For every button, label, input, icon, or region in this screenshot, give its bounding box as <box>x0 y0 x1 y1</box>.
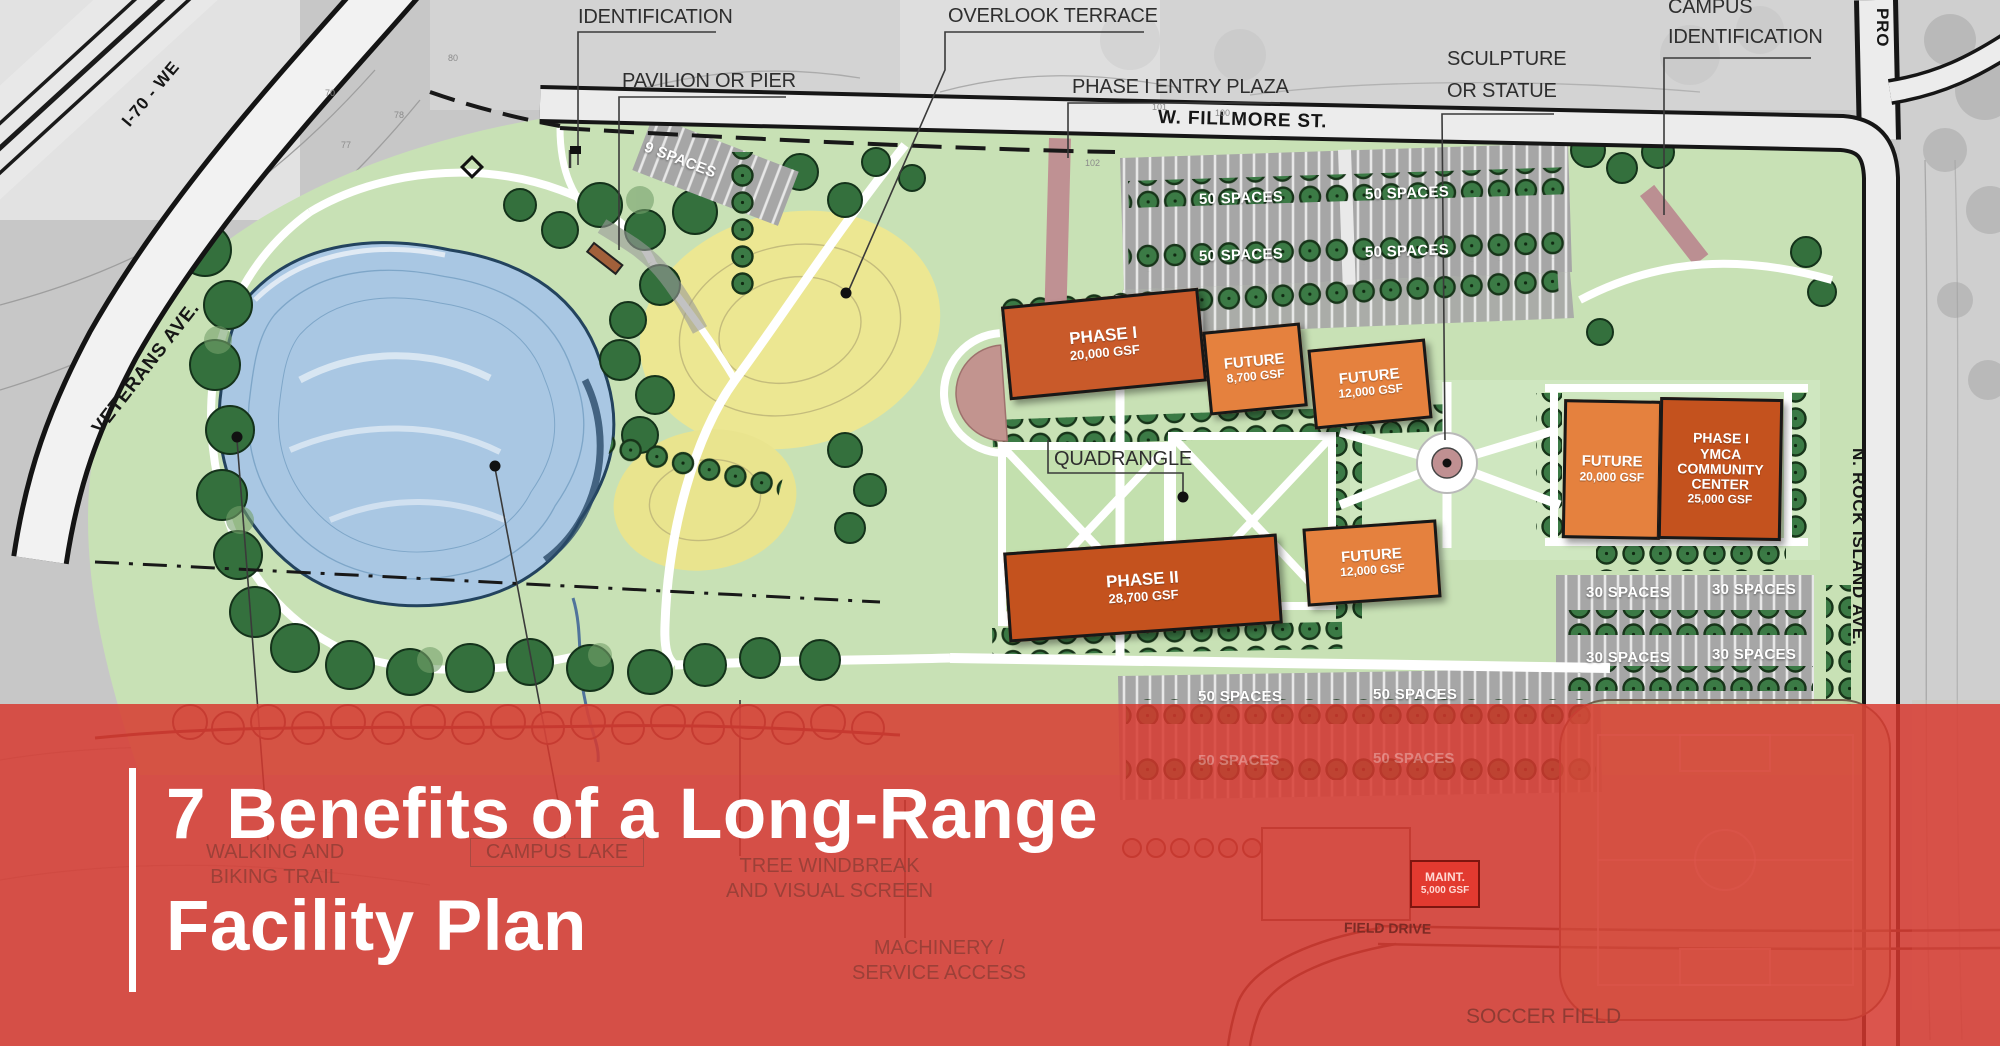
banner-title-line1: 7 Benefits of a Long-Range <box>166 774 1098 855</box>
building-future-20000: FUTURE 20,000 GSF <box>1562 399 1662 540</box>
building-future-12000-south: FUTURE 12,000 GSF <box>1302 519 1441 606</box>
parking-label-30-spaces: 30 SPACES <box>1586 649 1670 666</box>
contour-number: 100 <box>1215 108 1230 118</box>
parking-label-50-spaces-faded: 50 SPACES <box>1198 752 1279 769</box>
contour-number: 70 <box>325 88 335 98</box>
title-banner-overlay: WALKING AND BIKING TRAIL CAMPUS LAKE TRE… <box>0 704 2000 1046</box>
callout-line: SERVICE ACCESS <box>852 961 1026 986</box>
building-label: 28,700 GSF <box>1108 587 1179 607</box>
callout-campus-id-line1: CAMPUS <box>1668 0 1752 20</box>
parking-label-50-spaces: 50 SPACES <box>1365 183 1450 203</box>
parking-label-30-spaces: 30 SPACES <box>1586 584 1670 601</box>
contour-number: 77 <box>341 140 351 150</box>
street-label-rock-island: N. ROCK ISLAND AVE. <box>1848 448 1868 646</box>
callout-line: AND VISUAL SCREEN <box>726 879 933 904</box>
callout-line: MACHINERY / <box>852 936 1026 961</box>
callout-tree-windbreak: TREE WINDBREAK AND VISUAL SCREEN <box>726 854 933 904</box>
callout-identification: IDENTIFICATION <box>578 6 733 30</box>
callout-entry-plaza: PHASE I ENTRY PLAZA <box>1072 76 1289 100</box>
contour-number: 101 <box>1152 102 1167 112</box>
callout-sculpture-line1: SCULPTURE <box>1447 48 1566 72</box>
parking-label-50-spaces: 50 SPACES <box>1199 245 1284 265</box>
street-label-fillmore: W. FILLMORE ST. <box>1158 107 1328 133</box>
parking-label-50-spaces: 50 SPACES <box>1373 686 1457 703</box>
building-label: 8,700 GSF <box>1226 368 1285 387</box>
banner-title-line2: Facility Plan <box>166 886 587 967</box>
building-ymca-community-center: PHASE I YMCA COMMUNITY CENTER 25,000 GSF <box>1658 397 1783 541</box>
contour-number: 78 <box>394 110 404 120</box>
parking-label-30-spaces: 30 SPACES <box>1712 581 1796 598</box>
parking-label-50-spaces-faded: 50 SPACES <box>1373 750 1454 767</box>
callout-quadrangle: QUADRANGLE <box>1054 448 1192 472</box>
street-label-prospect: PRO <box>1872 8 1892 47</box>
building-maintenance: MAINT. 5,000 GSF <box>1410 860 1480 908</box>
title-accent-bar <box>129 768 136 992</box>
callout-sculpture-line2: OR STATUE <box>1447 80 1557 104</box>
parking-label-50-spaces: 50 SPACES <box>1365 241 1450 261</box>
callout-line: TREE WINDBREAK <box>726 854 933 879</box>
callout-overlook-terrace: OVERLOOK TERRACE <box>948 5 1158 29</box>
contour-number: 80 <box>448 53 458 63</box>
contour-number: 102 <box>1085 158 1100 168</box>
building-label: 25,000 GSF <box>1687 492 1752 507</box>
building-phase1: PHASE I 20,000 GSF <box>1001 288 1207 401</box>
parking-label-50-spaces: 50 SPACES <box>1199 188 1284 208</box>
callout-soccer-field: SOCCER FIELD <box>1466 1004 1621 1030</box>
building-label: 5,000 GSF <box>1421 885 1469 897</box>
parking-label-50-spaces: 50 SPACES <box>1198 688 1282 705</box>
building-future-12000-north: FUTURE 12,000 GSF <box>1307 339 1432 430</box>
building-phase2: PHASE II 28,700 GSF <box>1003 534 1283 643</box>
building-label: MAINT. <box>1425 871 1465 884</box>
callout-campus-id-line2: IDENTIFICATION <box>1668 26 1823 50</box>
campus-lake <box>219 243 614 606</box>
site-plan-graphic: W. FILLMORE ST. VETERANS AVE. I-70 - WE … <box>0 0 2000 1046</box>
callout-pavilion-or-pier: PAVILION OR PIER <box>622 70 796 94</box>
callout-machinery-service-access: MACHINERY / SERVICE ACCESS <box>852 936 1026 986</box>
building-future-8700: FUTURE 8,700 GSF <box>1202 322 1308 415</box>
building-label: 12,000 GSF <box>1340 562 1406 580</box>
building-label: 20,000 GSF <box>1579 470 1644 485</box>
street-label-field-drive: FIELD DRIVE <box>1344 919 1431 938</box>
parking-label-30-spaces: 30 SPACES <box>1712 646 1796 663</box>
